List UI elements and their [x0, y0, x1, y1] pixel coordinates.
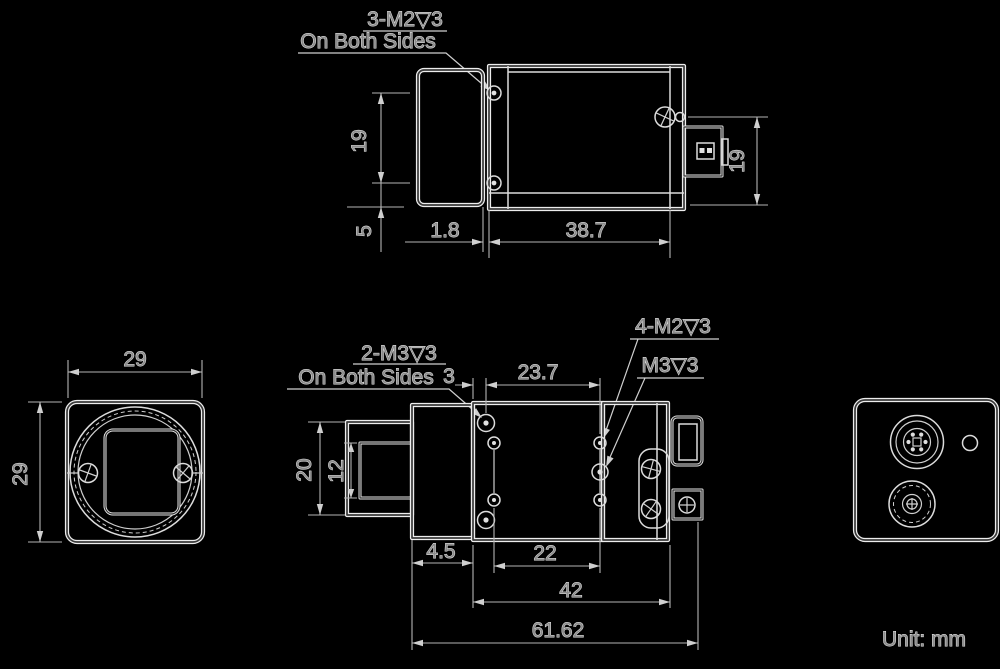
dim-text-22: 22: [533, 542, 556, 565]
callout-leader-line: [287, 389, 480, 416]
dim-front-width: 29: [68, 348, 202, 398]
dim-text-19-right: 19: [726, 149, 749, 172]
dim-text-19-left: 19: [348, 129, 371, 152]
connector-key: [913, 438, 921, 446]
front-screw-right: [170, 460, 203, 487]
callout-leader-line: [607, 378, 704, 464]
body-chamfer-lines: [489, 66, 684, 209]
dim-text-5: 5: [353, 225, 376, 237]
m3-hole-front-bottom: [478, 512, 495, 529]
dim-top-edge-offset: 5: [347, 183, 404, 252]
front-view: 29 29: [9, 348, 203, 542]
side-view: 2-M3▽3 On Both Sides 4-M2▽3 M3▽3: [287, 315, 719, 650]
rear-screw-upper: [639, 457, 662, 480]
unit-note: Unit: mm: [882, 628, 966, 651]
dim-side-top-span: 23.7: [486, 361, 600, 434]
dim-text-23-7: 23.7: [518, 361, 559, 384]
dim-text-1-8: 1.8: [430, 219, 459, 242]
rear-screw-lower: [638, 496, 664, 522]
rear-connector-top: [684, 127, 728, 176]
dim-side-bore: 12: [325, 443, 357, 498]
side-callout-m3-line2: On Both Sides: [298, 366, 433, 389]
m3-hole-front-top: [478, 415, 495, 432]
dim-text-61-62: 61.62: [532, 619, 585, 642]
thumbscrew: [889, 481, 935, 527]
dim-text-38-7: 38.7: [566, 219, 607, 242]
dim-text-29-left: 29: [9, 462, 32, 485]
side-callout-m3-line1: 2-M3▽3: [361, 342, 437, 365]
rear-panel: [855, 400, 997, 540]
rear-connector-side: [672, 417, 702, 465]
dim-text-3: 3: [443, 365, 455, 388]
dim-text-4-5: 4.5: [426, 540, 455, 563]
dim-text-29-top: 29: [123, 348, 146, 371]
camera-body-side: [473, 403, 603, 540]
dim-side-plate: 4.5: [412, 540, 473, 566]
top-callout-line2: On Both Sides: [300, 30, 435, 53]
dim-front-height: 29: [9, 402, 62, 542]
top-callout-line1: 3-M2▽3: [367, 8, 443, 31]
io-connector-circular: [891, 416, 944, 469]
dim-top-side-height: 19: [688, 117, 768, 205]
dim-top-hole-spacing: 19: [348, 93, 410, 183]
drawing-canvas: 3-M2▽3 On Both Sides: [0, 0, 1000, 669]
rear-small-hole: [963, 436, 978, 451]
lens-mount-block-top: [418, 70, 483, 205]
sensor-window: [105, 430, 179, 514]
lens-mount-plate-side: [412, 405, 473, 538]
rear-screw-head: [652, 104, 679, 131]
camera-body-top: [489, 66, 684, 209]
side-callout-m3-rear: M3▽3: [641, 354, 698, 377]
lens-barrel: [347, 422, 412, 515]
m2-holes-left-column: [488, 437, 500, 506]
front-screw-left: [67, 461, 100, 485]
screw-tab: [639, 449, 669, 528]
top-view: 3-M2▽3 On Both Sides: [298, 8, 768, 258]
dim-text-42: 42: [559, 579, 582, 602]
dim-top-step-and-length: 1.8 38.7: [405, 207, 670, 258]
rear-view: [855, 400, 997, 540]
dim-text-12: 12: [325, 459, 348, 482]
side-callout-m2-rear: 4-M2▽3: [635, 315, 711, 338]
rear-terminal-side: [673, 490, 702, 519]
dim-text-20: 20: [293, 458, 316, 481]
dim-side-mid-span: 42: [473, 545, 670, 608]
camera-dimension-drawing: 3-M2▽3 On Both Sides: [0, 0, 1000, 669]
